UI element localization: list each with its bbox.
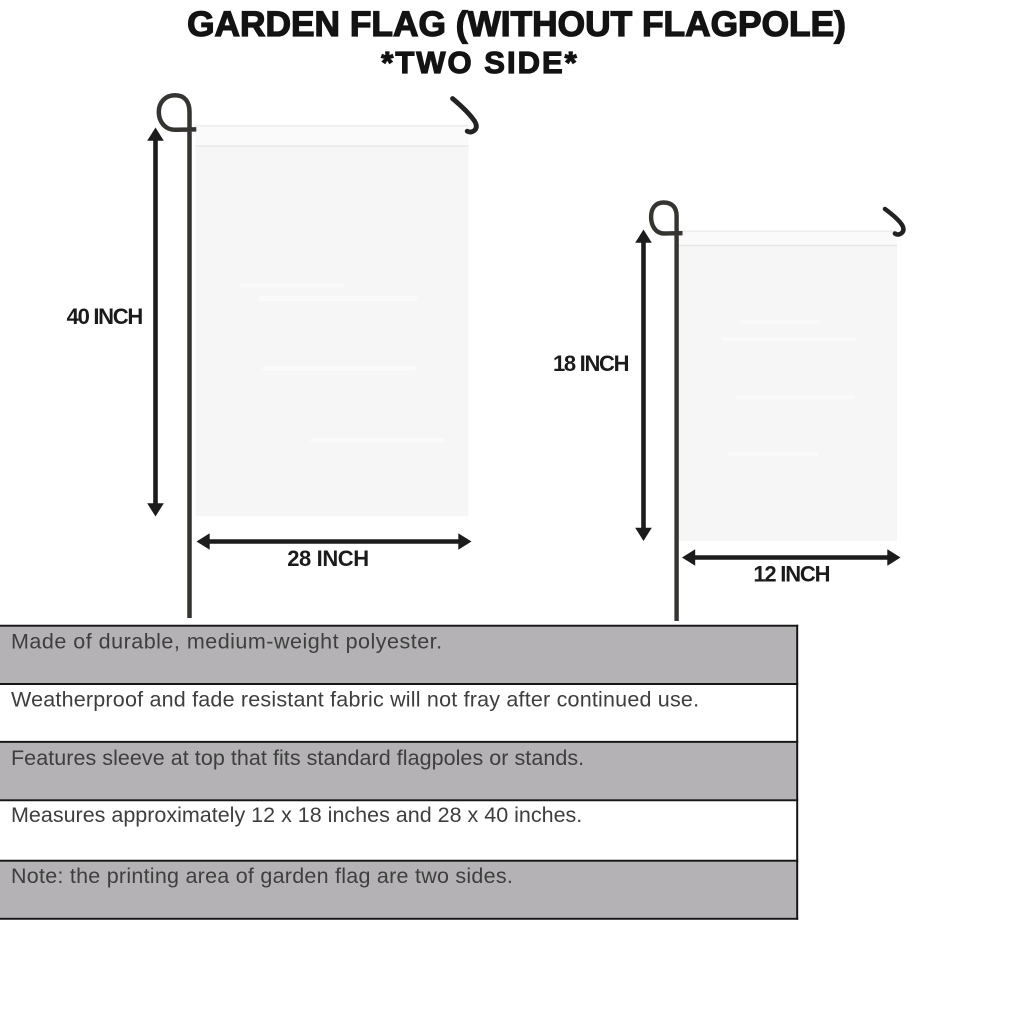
svg-text:Made of durable, medium-weight: Made of durable, medium-weight polyester…: [11, 629, 443, 653]
svg-text:28 INCH: 28 INCH: [287, 546, 369, 571]
svg-text:12 INCH: 12 INCH: [753, 561, 829, 586]
svg-text:40 INCH: 40 INCH: [67, 304, 143, 329]
svg-text:Measures approximately 12 x 18: Measures approximately 12 x 18 inches an…: [11, 803, 582, 827]
svg-text:*TWO SIDE*: *TWO SIDE*: [381, 45, 578, 80]
svg-text:Features sleeve at top that fi: Features sleeve at top that fits standar…: [11, 746, 584, 770]
svg-text:Note: the printing area of gar: Note: the printing area of garden flag a…: [11, 864, 513, 888]
svg-text:GARDEN FLAG (WITHOUT FLAGPOLE): GARDEN FLAG (WITHOUT FLAGPOLE): [187, 5, 846, 44]
svg-text:18 INCH: 18 INCH: [553, 351, 629, 376]
svg-text:Weatherproof and fade resistan: Weatherproof and fade resistant fabric w…: [11, 687, 699, 711]
